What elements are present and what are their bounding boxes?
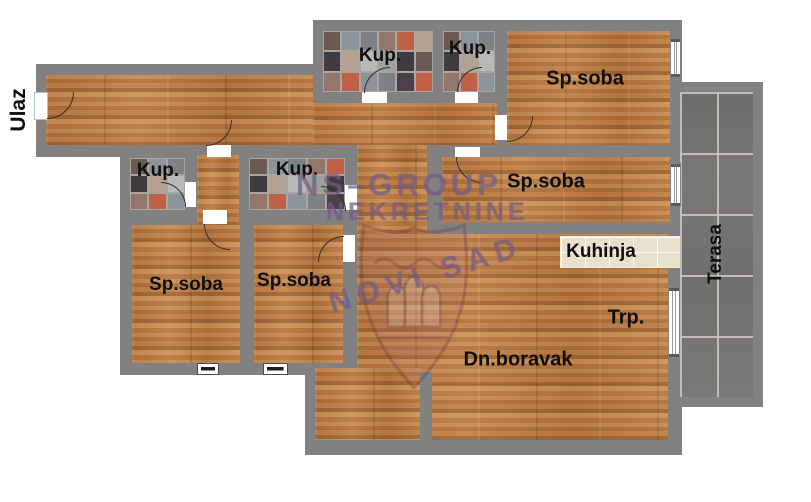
bath-tile	[416, 32, 432, 50]
room-label-bath-mid-center: Kup.	[276, 159, 318, 181]
bath-tile	[131, 194, 147, 209]
door-opening-bedroom-top-right	[495, 115, 507, 140]
door-opening-small-hall	[207, 145, 231, 157]
bath-tile	[250, 194, 267, 209]
bath-tile	[250, 159, 267, 174]
room-label-bath-mid-left: Kup.	[137, 160, 179, 182]
room-label-bath-top-left: Kup.	[359, 45, 401, 67]
floor-corridor	[46, 75, 313, 145]
bath-tile	[324, 52, 340, 70]
bath-tile	[327, 159, 344, 174]
door-opening-bath-top-right	[455, 92, 478, 103]
bath-tile	[250, 176, 267, 191]
room-label-living: Dn.boravak	[464, 349, 573, 372]
bath-tile	[342, 52, 358, 70]
room-label-bedroom-bottom-left: Sp.soba	[149, 274, 223, 296]
bath-tile	[324, 73, 340, 91]
window-living-terrace	[668, 287, 680, 358]
bath-tile	[342, 73, 358, 91]
door-opening-bedroom-bottom-left	[203, 210, 227, 224]
room-label-terrace: Terasa	[705, 224, 727, 284]
floor-lobe	[315, 368, 420, 440]
bath-tile	[324, 32, 340, 50]
door-opening-bath-mid-left	[185, 182, 196, 207]
window-bedroom-top-right	[670, 38, 681, 78]
window-bedroom-bottom-left	[197, 363, 219, 375]
room-label-kitchen: Kuhinja	[566, 241, 636, 263]
floor-corridor-right	[313, 103, 497, 145]
room-label-bedroom-mid-right: Sp.soba	[507, 171, 585, 194]
room-label-bath-top-right: Kup.	[449, 38, 491, 60]
window-bedroom-mid-right	[670, 163, 681, 207]
window-bedroom-bottom-center	[263, 363, 288, 375]
door-opening-bedroom-bottom-center	[343, 235, 355, 262]
bath-tile	[397, 73, 413, 91]
room-label-bedroom-bottom-center: Sp.soba	[257, 270, 331, 292]
door-opening-bedroom-mid-right	[455, 147, 480, 157]
bath-tile	[269, 194, 286, 209]
door-opening-bath-top-left	[362, 92, 387, 103]
bath-tile	[342, 32, 358, 50]
floor-hallway	[357, 145, 427, 234]
bath-tile	[416, 52, 432, 70]
room-label-dining: Trp.	[608, 307, 645, 330]
bath-tile	[288, 194, 305, 209]
entrance-door-opening	[34, 92, 48, 120]
floor-plan: Ulaz Kup. Kup. Sp.soba Kup. Kup. Sp.soba…	[0, 0, 811, 502]
bath-tile	[416, 73, 432, 91]
room-label-bedroom-top-right: Sp.soba	[546, 68, 624, 91]
room-label-entrance: Ulaz	[7, 88, 31, 131]
wall-stub-living	[420, 372, 432, 452]
door-opening-bath-mid-center	[345, 185, 357, 210]
